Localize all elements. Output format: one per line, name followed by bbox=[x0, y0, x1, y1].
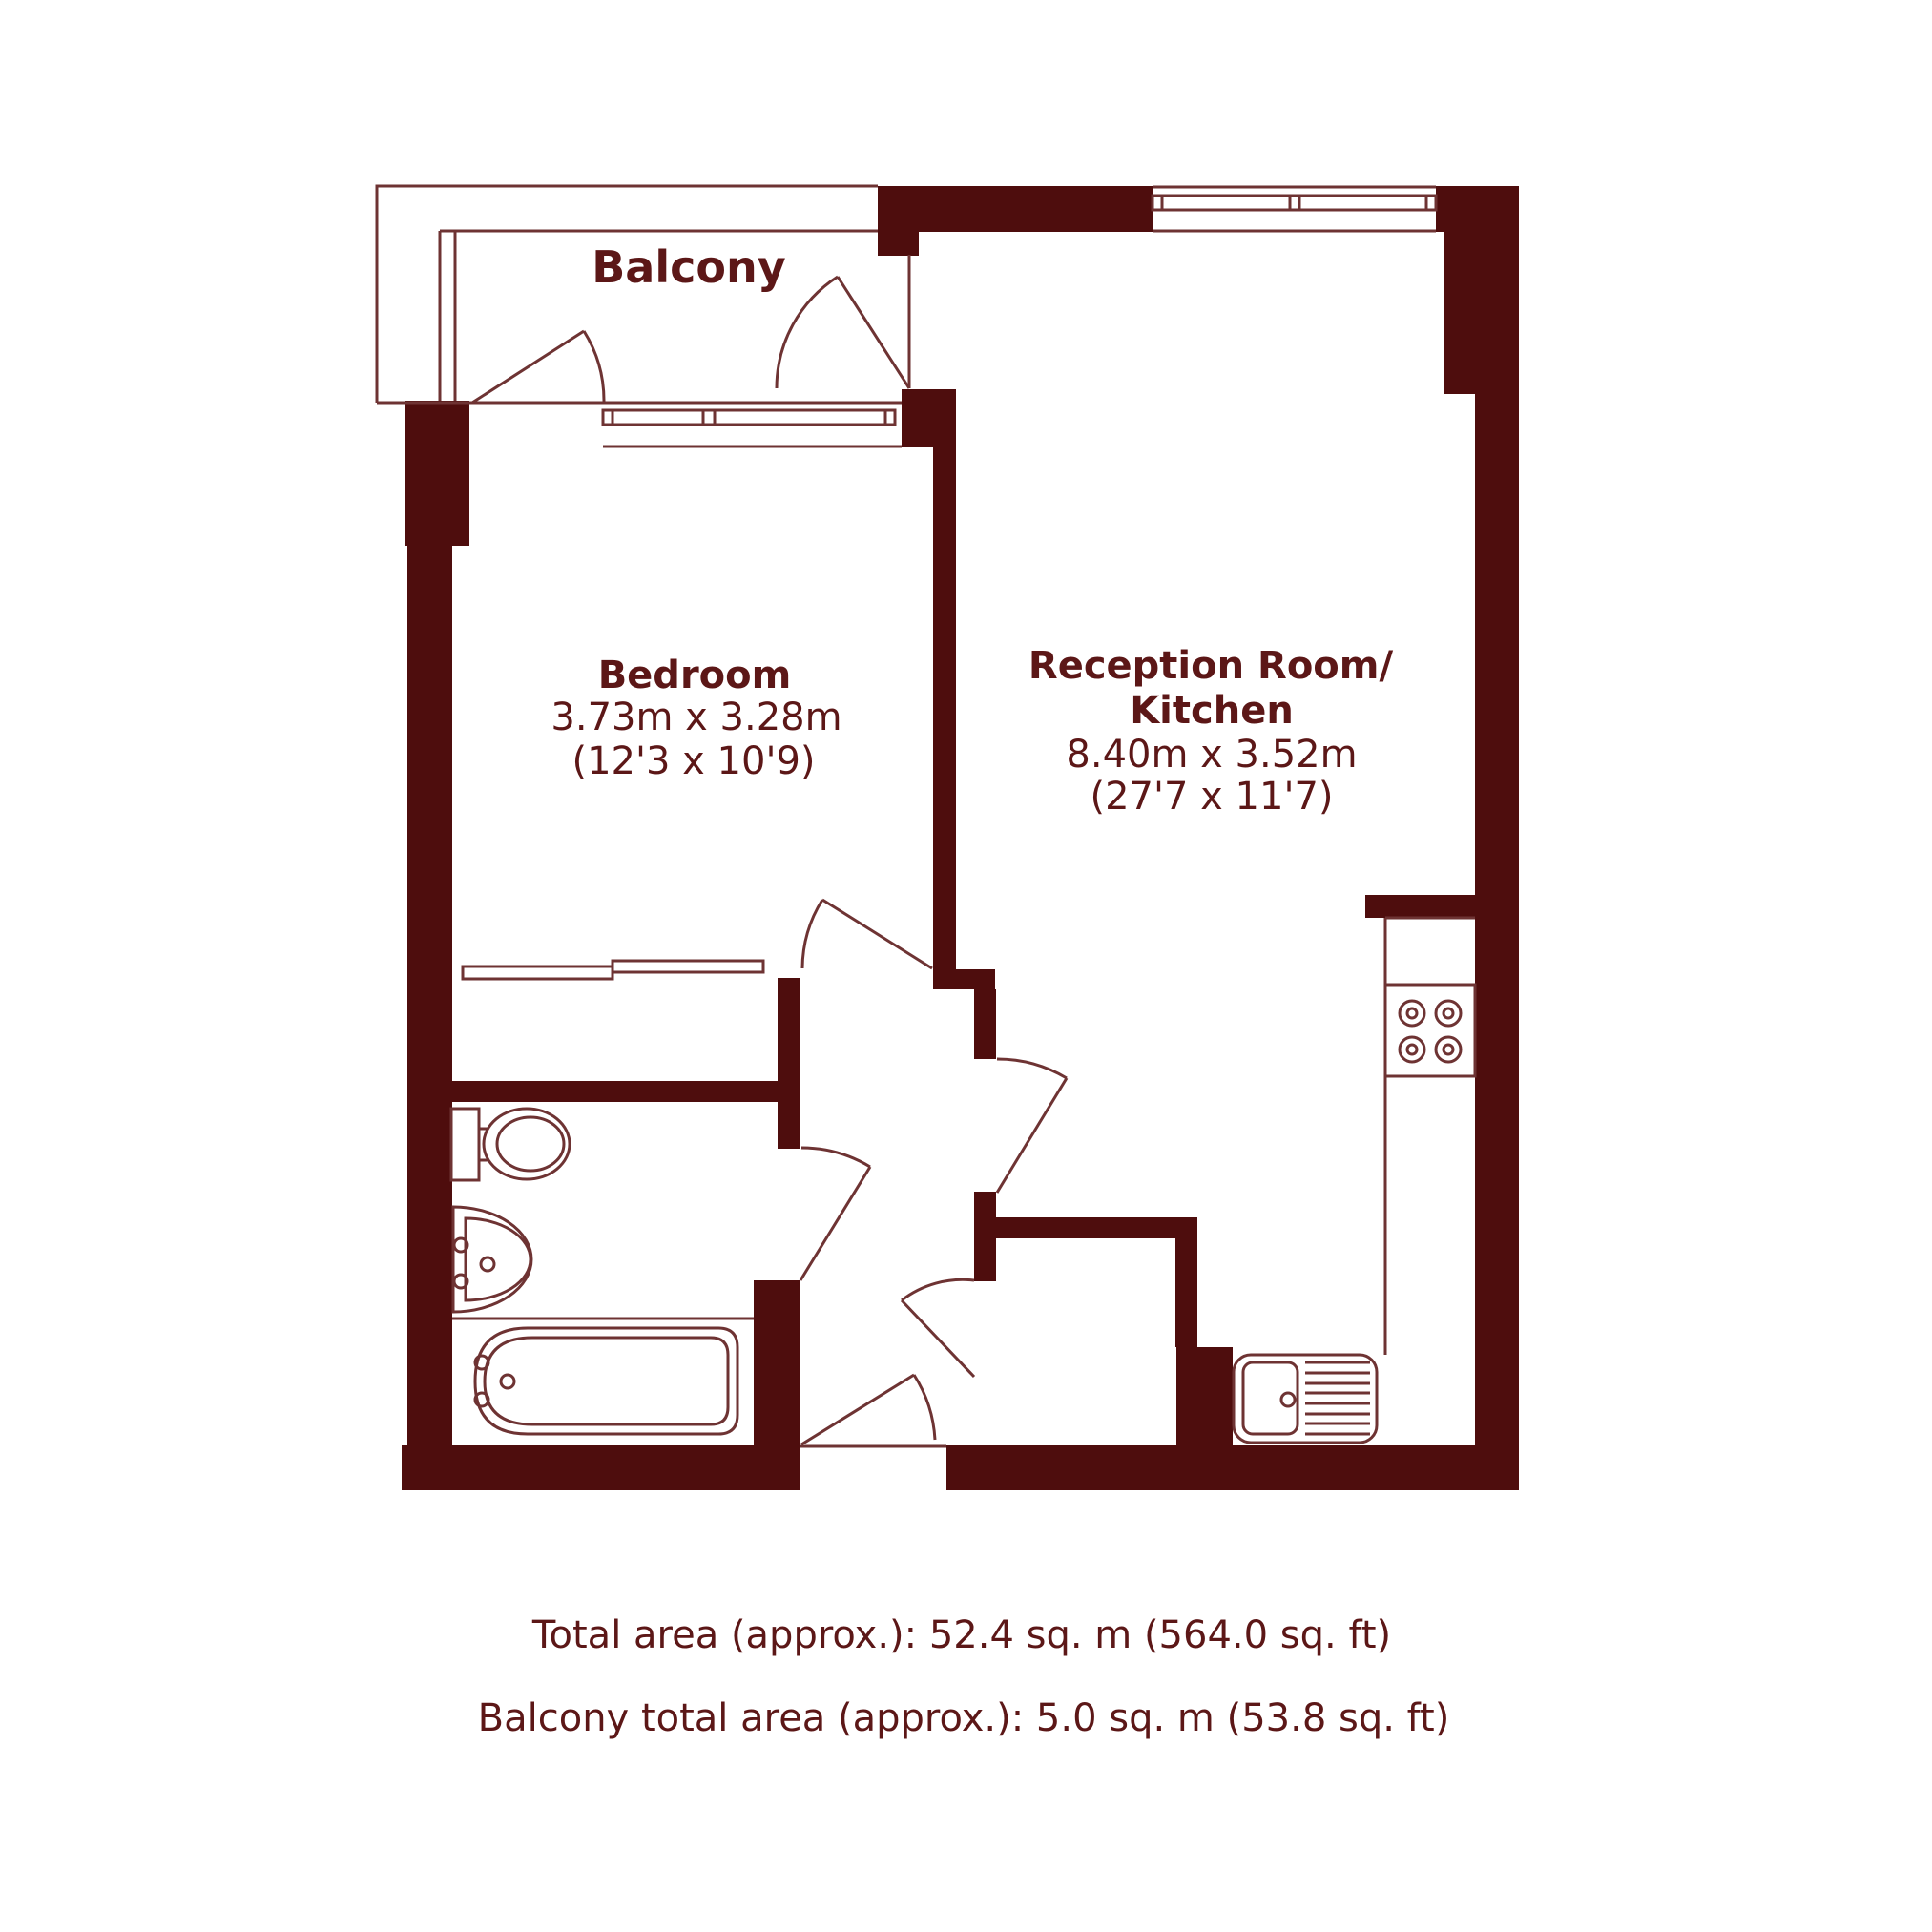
wall-segment bbox=[407, 1081, 800, 1102]
reception-dims-metric: 8.40m x 3.52m bbox=[1066, 733, 1357, 777]
reception-label-line2: Kitchen bbox=[1130, 689, 1294, 733]
wall-segment bbox=[1475, 393, 1519, 1490]
wall-segment bbox=[1176, 1347, 1233, 1445]
wall-segment bbox=[933, 969, 995, 989]
floorplan-page: Balcony Bedroom 3.73m x 3.28m (12'3 x 10… bbox=[0, 0, 1932, 1932]
wall-segment bbox=[946, 1445, 1519, 1490]
wall-segment bbox=[407, 546, 452, 1445]
wall-segment bbox=[974, 1217, 1197, 1238]
wall-segment bbox=[902, 389, 956, 447]
toilet-cistern bbox=[451, 1109, 479, 1180]
wall-segment bbox=[1436, 186, 1519, 232]
floor-plan: Balcony Bedroom 3.73m x 3.28m (12'3 x 10… bbox=[0, 0, 1932, 1932]
kitchen-sink-fixture bbox=[1234, 1355, 1377, 1443]
toilet-fixture bbox=[451, 1109, 570, 1180]
wall-segment bbox=[1365, 895, 1475, 918]
wall-segment bbox=[933, 447, 956, 969]
balcony-label: Balcony bbox=[592, 241, 785, 293]
wall-segment bbox=[402, 1445, 800, 1490]
wall-segment bbox=[754, 1280, 800, 1445]
reception-label-line1: Reception Room/ bbox=[1028, 644, 1394, 688]
sink-unit-outline bbox=[1234, 1355, 1377, 1443]
bedroom-dims-imperial: (12'3 x 10'9) bbox=[572, 739, 816, 783]
wall-segment bbox=[974, 989, 996, 1059]
wall-segment bbox=[405, 401, 469, 546]
bedroom-label: Bedroom bbox=[598, 654, 792, 697]
total-area-text: Total area (approx.): 52.4 sq. m (564.0 … bbox=[531, 1613, 1391, 1657]
bedroom-dims-metric: 3.73m x 3.28m bbox=[551, 696, 841, 739]
balcony-area-text: Balcony total area (approx.): 5.0 sq. m … bbox=[478, 1696, 1450, 1740]
wall-segment bbox=[1444, 232, 1519, 394]
wall-segment bbox=[1175, 1238, 1197, 1347]
wall-segment bbox=[878, 186, 1153, 232]
wall-segment bbox=[878, 232, 919, 256]
wall-segment bbox=[778, 978, 800, 1149]
toilet-bowl-inner bbox=[497, 1117, 564, 1171]
reception-dims-imperial: (27'7 x 11'7) bbox=[1091, 775, 1334, 819]
